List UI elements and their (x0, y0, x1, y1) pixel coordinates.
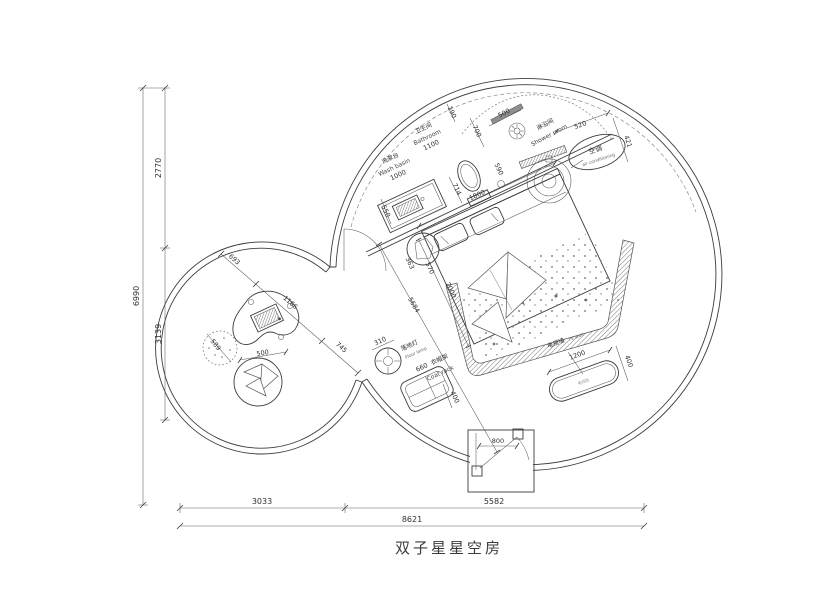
bean-bag (234, 358, 282, 406)
dim-tv-depth: 400 (616, 346, 635, 381)
dim-diagonal: 5684 (376, 242, 500, 454)
svg-text:714: 714 (451, 182, 464, 197)
svg-text:3139: 3139 (154, 324, 163, 344)
svg-text:520: 520 (573, 119, 587, 131)
svg-text:8621: 8621 (402, 515, 422, 524)
svg-text:5684: 5684 (406, 296, 421, 314)
svg-text:660: 660 (414, 361, 429, 374)
dim-ac-depth: 421 (613, 118, 634, 162)
shower-boundary-dashed (462, 95, 612, 140)
label-bathroom: 卫生间 Bathroom 1100 (413, 121, 443, 153)
label-rack: 660 衣帽架 Coat rack 400 (414, 352, 461, 408)
ac-label-en: air conditioning (581, 152, 616, 168)
laptop (251, 304, 284, 332)
label-shower: 淋浴间 Shower room (530, 116, 569, 148)
svg-text:590: 590 (493, 162, 506, 177)
svg-text:700: 700 (471, 124, 484, 139)
svg-text:363: 363 (404, 256, 416, 271)
svg-text:5582: 5582 (484, 497, 504, 506)
svg-text:693: 693 (227, 252, 242, 266)
floor-drain-icon (509, 123, 525, 139)
dim-shower-opening: 590 (493, 162, 506, 188)
door-opening (470, 452, 533, 475)
pillow (469, 206, 506, 236)
svg-text:衣帽架: 衣帽架 (429, 352, 449, 367)
svg-text:550: 550 (380, 204, 393, 219)
faucet-icon (420, 197, 424, 201)
dim-bottom: 3033 5582 8621 (177, 497, 647, 529)
plan-title: 双子星星空房 (395, 539, 503, 557)
svg-text:6990: 6990 (132, 286, 141, 306)
dim-pouf: 589 (207, 334, 231, 362)
svg-text:400: 400 (449, 390, 462, 405)
label-basin: 洗漱台 Wash basin 1000 (377, 151, 411, 183)
svg-text:400: 400 (623, 354, 635, 368)
svg-text:3033: 3033 (252, 497, 272, 506)
shower-bench (519, 146, 566, 169)
floor-plan-drawing: 空调 air conditioning (0, 0, 837, 592)
svg-text:310: 310 (373, 335, 388, 348)
svg-text:500: 500 (497, 107, 512, 120)
dim-left: 2770 6990 3139 (132, 85, 170, 508)
floor-lamp (375, 348, 401, 374)
svg-text:190: 190 (446, 105, 459, 120)
svg-text:800: 800 (492, 437, 504, 445)
dim-partition: 700 (470, 118, 484, 147)
tv-cabinet: 电视柜 (546, 357, 622, 404)
dim-toilet: 714 (449, 177, 463, 203)
svg-text:421: 421 (622, 134, 633, 148)
floor-plan-canvas: 空调 air conditioning (0, 0, 837, 592)
svg-text:2770: 2770 (154, 158, 163, 178)
tv-cabinet-label: 电视柜 (577, 376, 590, 386)
svg-text:500: 500 (256, 348, 270, 358)
dim-beanbag: 500 (238, 348, 288, 363)
pillow (433, 222, 470, 252)
